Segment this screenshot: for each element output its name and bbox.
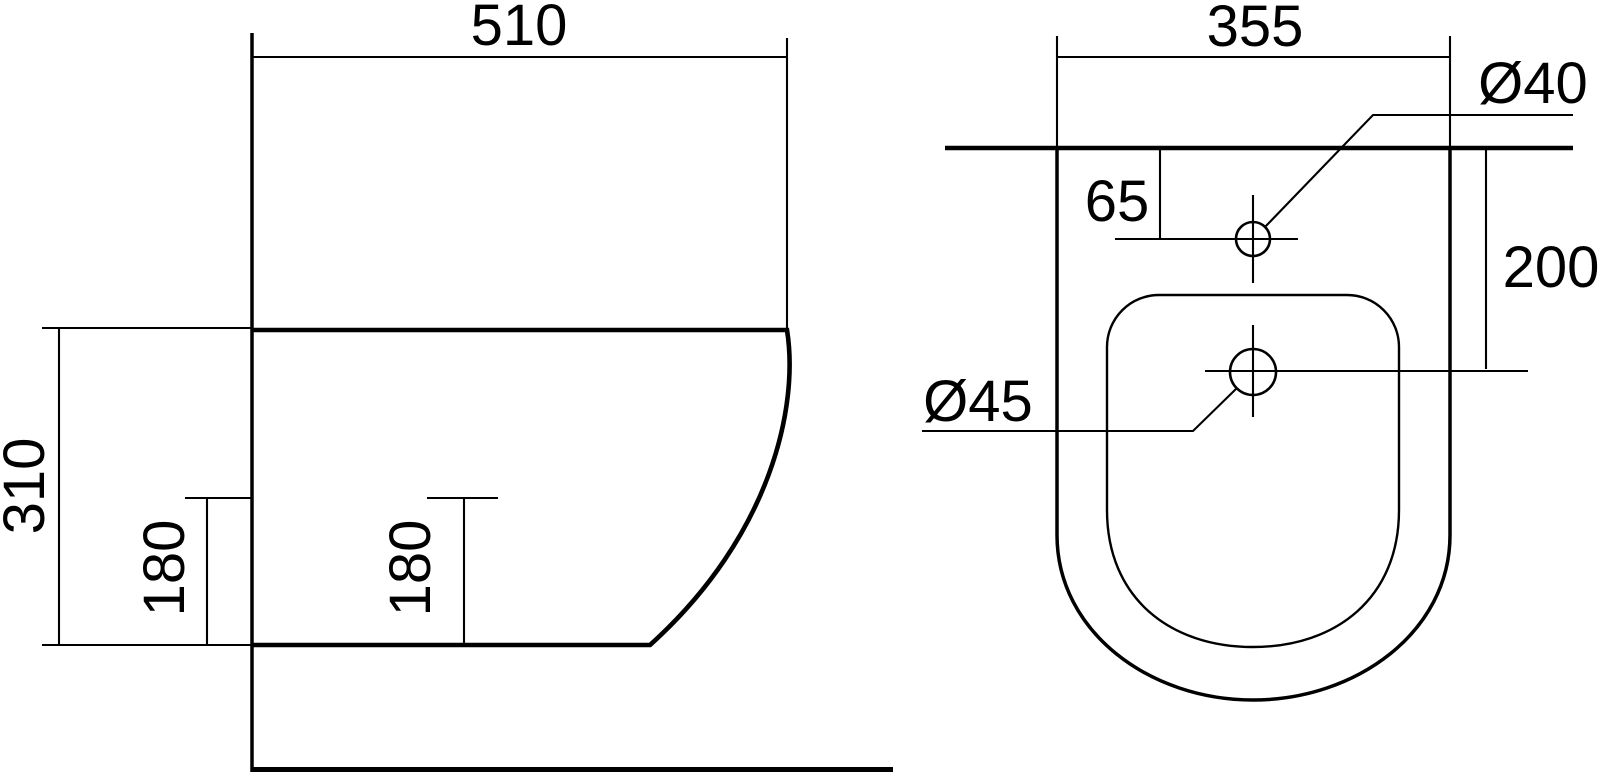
technical-drawing-canvas: 510 310 180 180	[0, 0, 1600, 775]
dim-355-label: 355	[1207, 0, 1304, 59]
inlet-diameter-label: Ø40	[1478, 51, 1588, 116]
dim-510-label: 510	[471, 0, 568, 58]
side-view: 510 310 180 180	[0, 0, 893, 772]
dim-180-right-label: 180	[378, 520, 443, 617]
drain-diameter-label: Ø45	[923, 369, 1033, 434]
plan-view: 355 65 Ø40 200 Ø45	[922, 0, 1599, 700]
dim-65-label: 65	[1085, 169, 1150, 234]
dim-310-label: 310	[0, 438, 57, 535]
bidet-dimension-drawing: 510 310 180 180	[0, 0, 1600, 775]
dim-180-left-label: 180	[132, 520, 197, 617]
inlet-diameter-leader-line	[1265, 115, 1573, 227]
dim-200-label: 200	[1503, 235, 1600, 300]
side-fixture-profile	[252, 330, 790, 645]
